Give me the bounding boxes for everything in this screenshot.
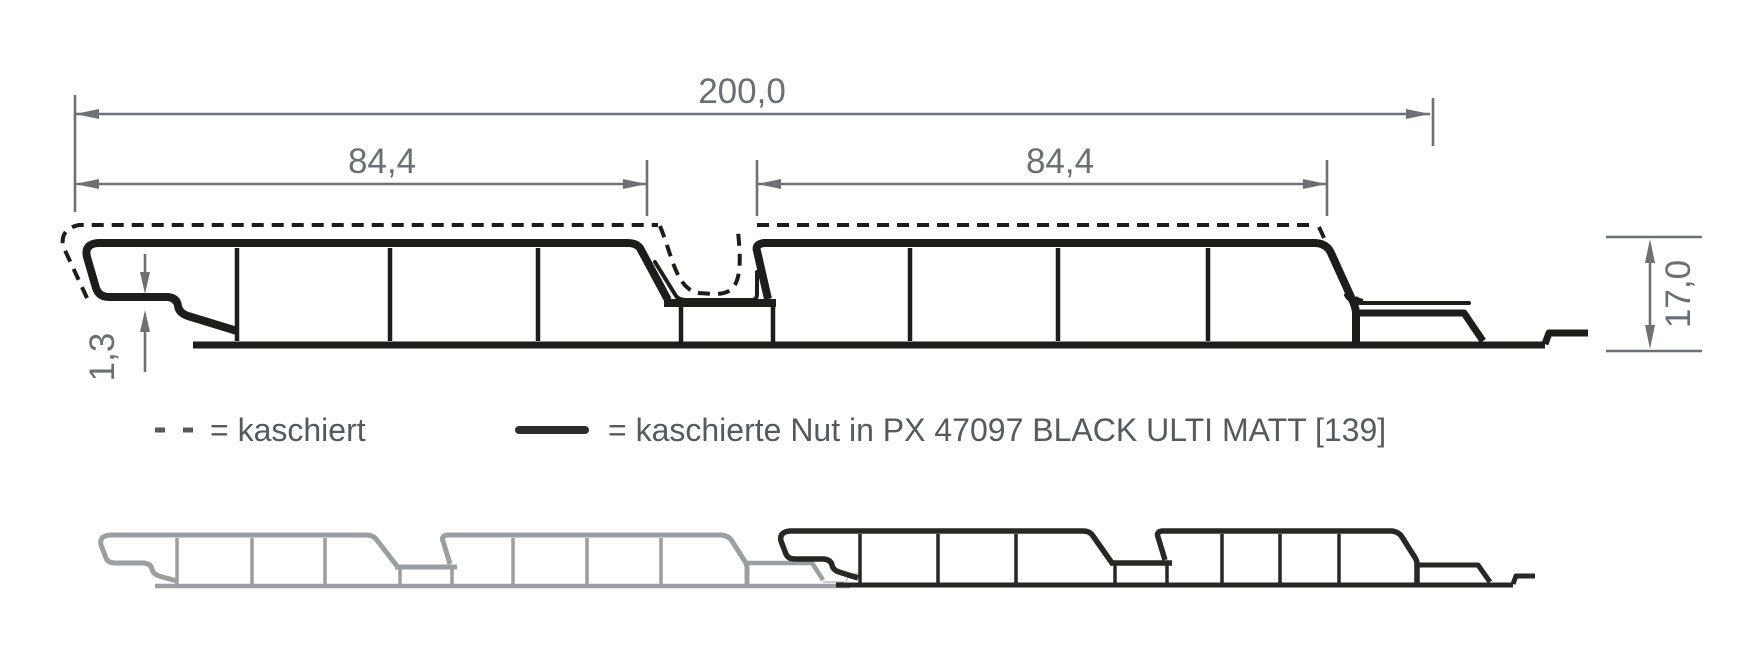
arrow-down-icon	[140, 272, 150, 294]
dimension-value-height: 17,0	[1659, 260, 1698, 328]
technical-drawing: 200,0 84,4 84,4	[0, 0, 1737, 666]
drawing-page: 200,0 84,4 84,4	[0, 0, 1737, 666]
dimension-height: 17,0	[1606, 237, 1702, 351]
kaschiert-dashed-line-left	[63, 225, 658, 298]
arrow-up-icon	[140, 310, 150, 332]
gray-left-face-outline	[101, 535, 397, 581]
dimension-value-lip: 1,3	[83, 333, 122, 382]
legend-dashed-label: = kaschiert	[210, 412, 366, 448]
kaschiert-dashed-line-tongue	[1319, 227, 1363, 301]
dimension-value-overall: 200,0	[698, 72, 786, 111]
tongue-lamination-line	[1346, 295, 1469, 303]
dimension-face-left: 84,4	[75, 142, 647, 216]
arrow-right-icon	[1303, 179, 1327, 189]
gray-tongue	[747, 563, 823, 580]
dimension-overall-width: 200,0	[75, 72, 1433, 212]
arrow-right-icon	[1406, 109, 1430, 119]
joined-panel-gray	[101, 535, 860, 586]
black-right-face-outline	[1158, 531, 1418, 583]
arrow-right-icon	[623, 179, 647, 189]
black-tongue	[1417, 565, 1490, 582]
black-tongue-hook	[1513, 576, 1535, 584]
legend-solid-label: = kaschierte Nut in PX 47097 BLACK ULTI …	[608, 412, 1386, 448]
legend: = kaschiert = kaschierte Nut in PX 47097…	[155, 412, 1386, 448]
dimension-value-face-left: 84,4	[348, 142, 416, 181]
dimension-value-face-right: 84,4	[1026, 142, 1094, 181]
kaschiert-dashed-line-groove	[660, 226, 740, 294]
tongue-end-hook	[1545, 333, 1588, 344]
joined-panel-black	[781, 531, 1535, 585]
dimension-face-right: 84,4	[757, 142, 1327, 216]
profile-cross-section	[63, 225, 1588, 345]
arrow-left-icon	[75, 109, 99, 119]
tongue-outline	[1356, 313, 1483, 341]
gray-right-face-outline	[443, 535, 748, 585]
arrow-left-icon	[757, 179, 781, 189]
arrow-left-icon	[75, 179, 99, 189]
arrow-down-icon	[1645, 325, 1655, 349]
arrow-up-icon	[1645, 239, 1655, 263]
left-face-outline	[86, 243, 668, 331]
joined-panels-illustration	[101, 531, 1535, 586]
black-left-face-outline	[781, 531, 1112, 578]
